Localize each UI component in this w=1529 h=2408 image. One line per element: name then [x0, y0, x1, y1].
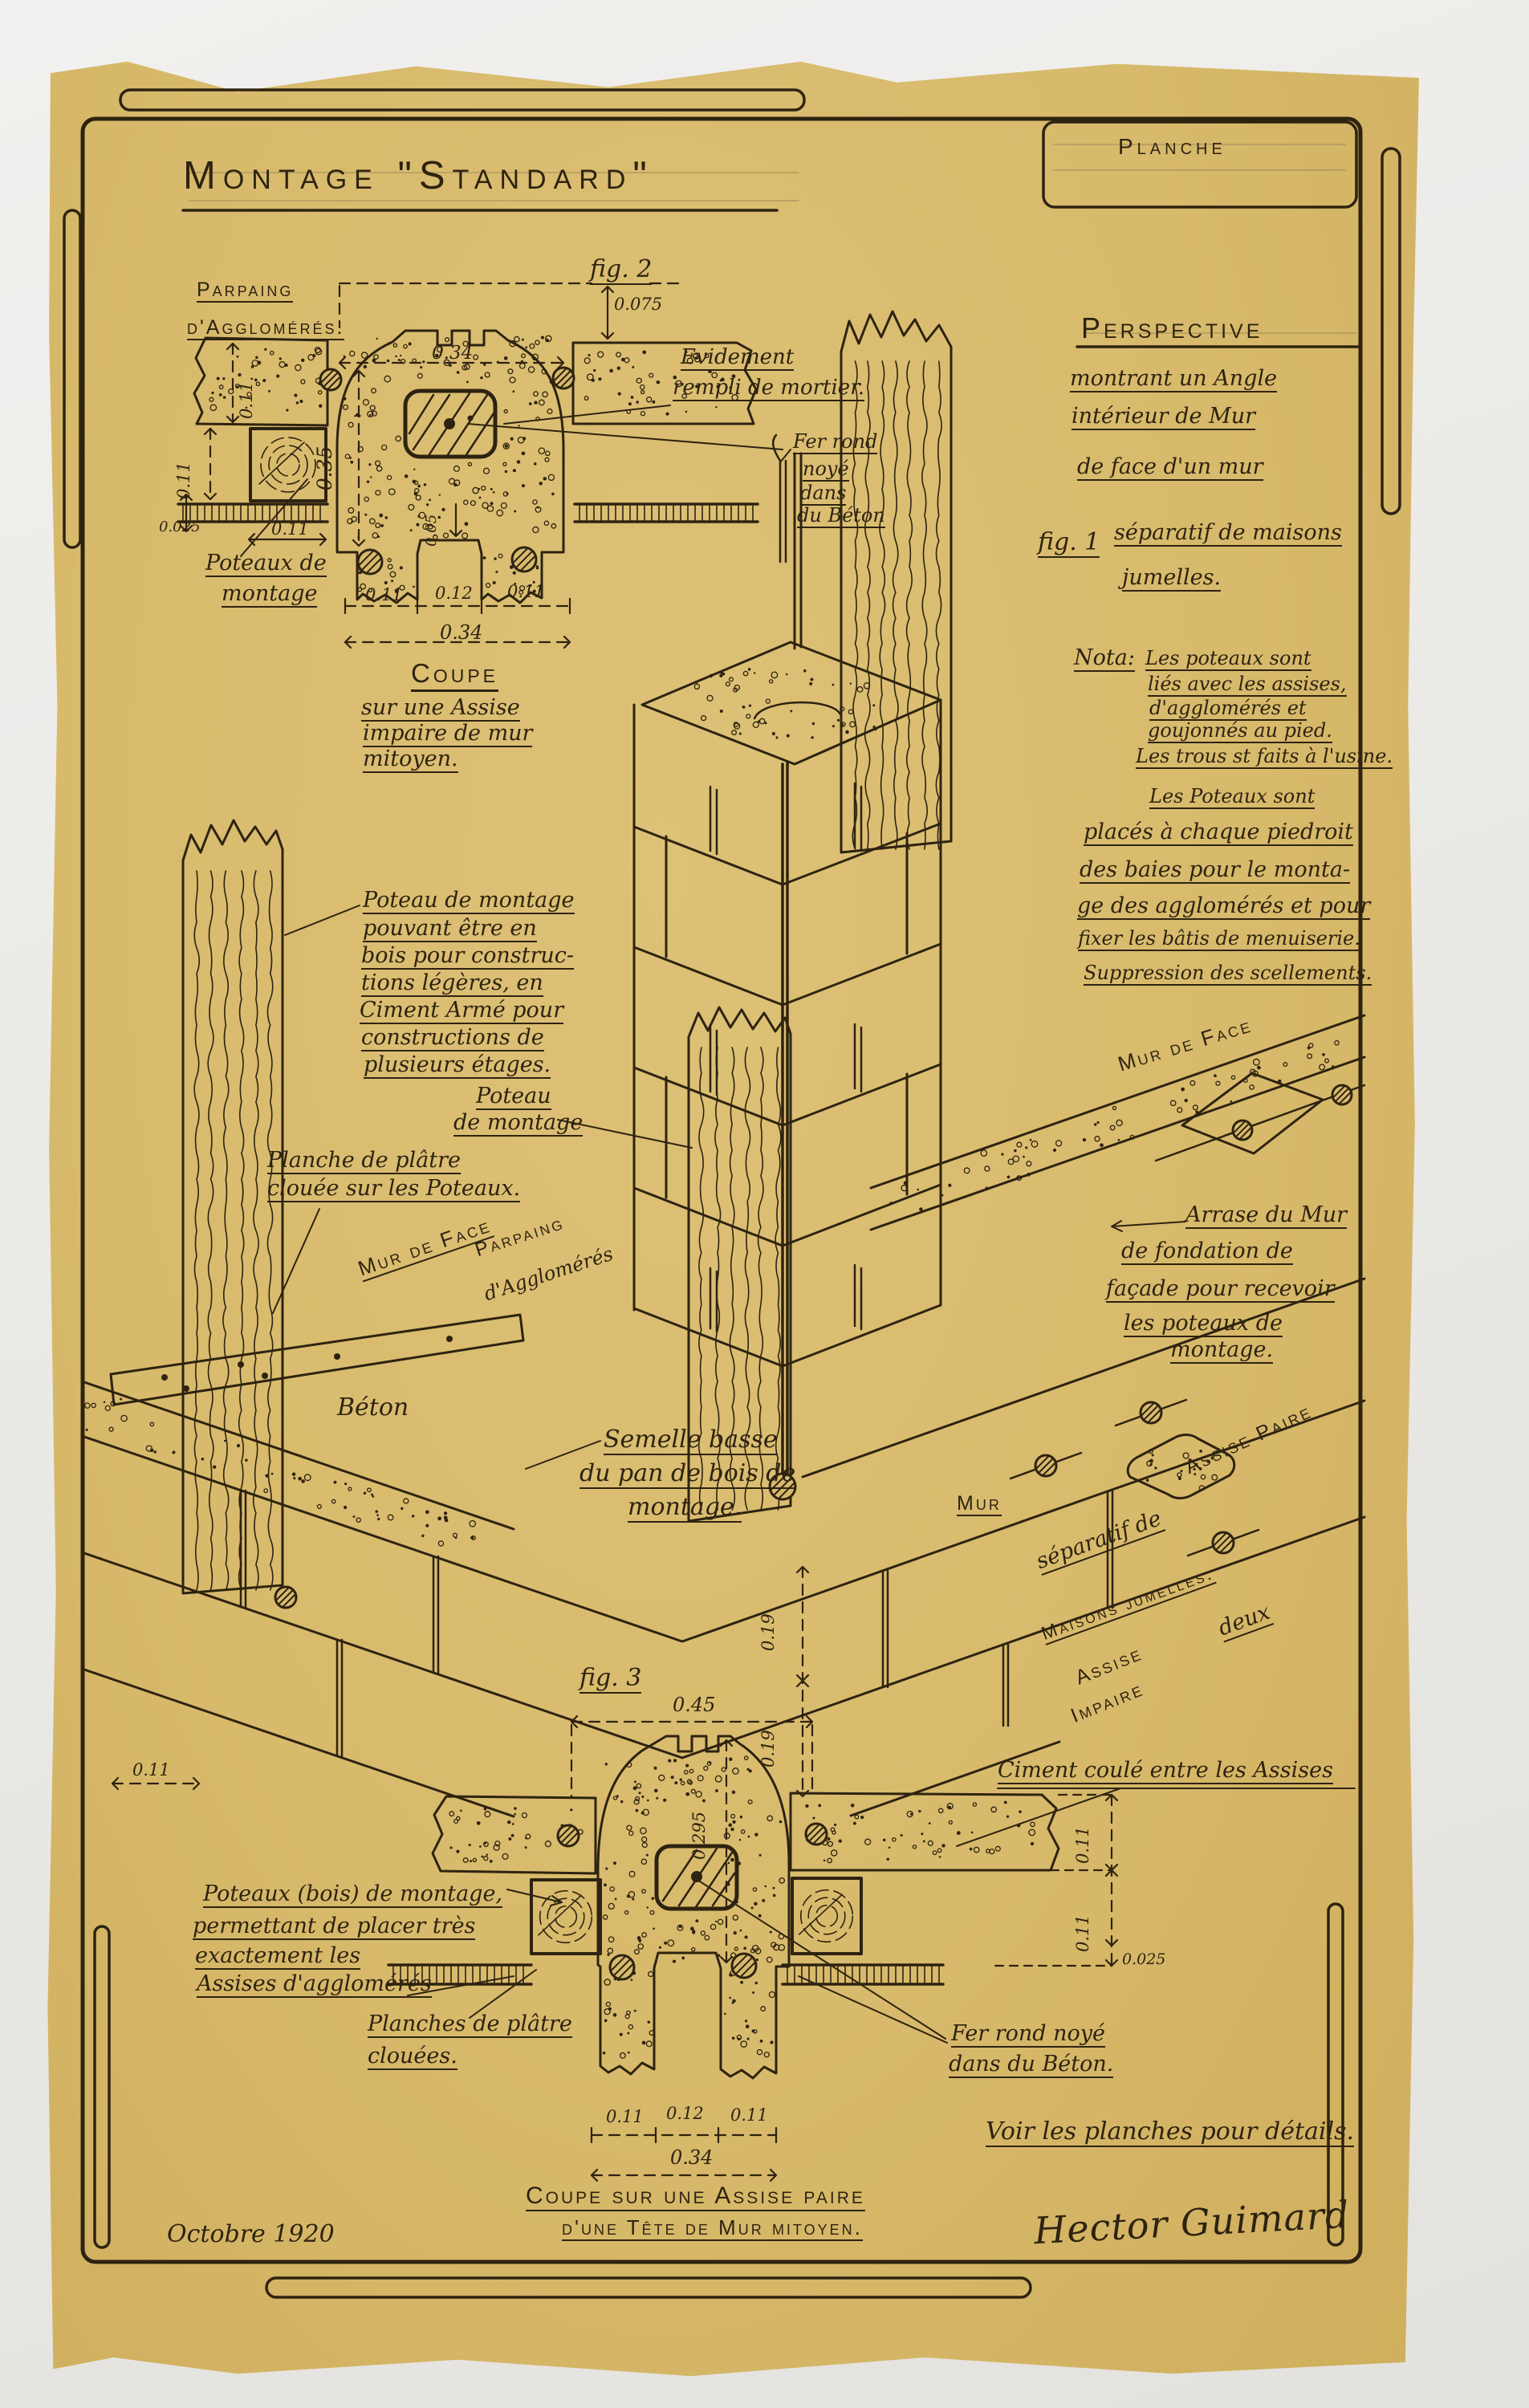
fig2-evidement-label: rempli de mortier. [673, 377, 864, 401]
nota-line: goujonnés au pied. [1148, 721, 1332, 743]
planche-platre-label: clouée sur les Poteaux. [267, 1178, 520, 1202]
nota-line: Les Poteaux sont [1149, 787, 1315, 809]
fig1-subtitle-line: jumelles. [1122, 567, 1221, 592]
poteau-note-line: tions légères, en [361, 972, 543, 997]
fig2-fer-rond-label: dans [800, 483, 846, 506]
fig2-dim-011-post: 0.11 [271, 520, 309, 538]
poteau-note-line: pouvant être en [363, 917, 537, 942]
semelle-label: Semelle basse [604, 1427, 778, 1455]
nota-line: des baies pour le monta- [1080, 859, 1350, 884]
nota-line: Les poteaux sont [1145, 649, 1311, 671]
fig3-fer-rond-label: dans du Béton. [949, 2053, 1113, 2078]
nota-label: Nota: [1074, 647, 1135, 672]
fig3-dim-0025: 0.025 [1122, 1952, 1165, 1968]
fig2-parpaing-label: d'Agglomérés. [187, 317, 344, 340]
fig2-dim-034-top: 0.34 [432, 344, 473, 363]
fig2-dim-034-bottom: 0.34 [440, 623, 482, 643]
fig3-poteaux-note: exactement les [195, 1945, 360, 1970]
fig3-caption: Coupe sur une Assise paire [526, 2183, 865, 2211]
fig3-caption: d'une Tête de Mur mitoyen. [562, 2217, 863, 2241]
scanned-drawing-page: Montage "Standard" Planche Perspective m… [0, 0, 1529, 2408]
semelle-label: du pan de bois de [579, 1461, 795, 1489]
fig3-dim-012: 0.12 [666, 2105, 704, 2122]
fig2-dim-011b: 0.11 [507, 583, 545, 600]
fig2-poteaux-label: montage [222, 583, 317, 608]
fig2-dim-0075: 0.075 [614, 295, 662, 313]
fig2-caption-line: mitoyen. [363, 748, 458, 773]
fig2-caption-title: Coupe [411, 660, 498, 692]
fig3-fer-rond-label: Fer rond noyé [951, 2023, 1105, 2048]
fig3-dim-0295: 0.295 [690, 1812, 708, 1860]
fig2-label: fig. 2 [590, 257, 652, 285]
nota-line: liés avec les assises, [1148, 674, 1347, 697]
fig1-subtitle-line: montrant un Angle [1070, 368, 1277, 393]
fig1-subtitle-line: séparatif de maisons [1114, 522, 1342, 547]
poteau-montage-label: Poteau [476, 1085, 551, 1110]
fig2-fer-rond-label: Fer rond [793, 432, 877, 454]
fig2-dim-011-left: 0.11 [238, 381, 255, 419]
fig3-dim-045: 0.45 [673, 1695, 715, 1715]
fig2-evidement-label: Evidement [681, 347, 794, 371]
nota-line: fixer les bâtis de menuiserie. [1078, 929, 1360, 951]
fig3-dim-011b: 0.11 [730, 2106, 768, 2124]
masonry-dim-011: 0.11 [132, 1761, 170, 1779]
fig2-poteaux-label: Poteaux de [205, 552, 327, 577]
fig3-label: fig. 3 [579, 1666, 641, 1694]
fig1-title: Perspective [1081, 313, 1263, 344]
arrase-line: de fondation de [1121, 1240, 1293, 1265]
fig1-subtitle-line: de face d'un mur [1077, 456, 1263, 481]
fig3-poteaux-note: Assises d'agglomérés [197, 1973, 432, 1998]
fig2-fer-rond-label: du Béton [797, 506, 885, 528]
fig3-dim-011a: 0.11 [606, 2108, 644, 2125]
fig2-dim-012: 0.12 [435, 584, 473, 602]
nota-line: Les trous st faits à l'usine. [1136, 746, 1393, 769]
fig3-dim-011r2: 0.11 [1074, 1914, 1092, 1952]
arrase-line: les poteaux de [1124, 1312, 1283, 1337]
poteau-montage-label: de montage [453, 1112, 583, 1137]
fig3-poteaux-note: permettant de placer très [193, 1915, 475, 1940]
fig1-label: fig. 1 [1038, 530, 1100, 558]
semelle-label: montage. [628, 1495, 742, 1523]
fig1-subtitle-line: intérieur de Mur [1072, 405, 1255, 430]
fig2-dim-035: 0.35 [315, 446, 335, 491]
plate-label: Planche [1118, 135, 1226, 158]
see-plates-note: Voir les planches pour détails. [986, 2119, 1354, 2147]
poteau-note-line: constructions de [361, 1027, 544, 1051]
arrase-line: Arrase du Mur [1185, 1204, 1347, 1229]
mur-separatif-label: Mur [957, 1493, 1002, 1516]
planche-platre-label: Planche de plâtre [267, 1149, 461, 1174]
fig2-dim-005: 0.05 [425, 515, 440, 547]
nota-line: d'agglomérés et [1149, 698, 1307, 721]
arrase-line: montage. [1170, 1339, 1273, 1364]
fig3-poteaux-note: Poteaux (bois) de montage, [203, 1883, 502, 1908]
fig2-dim-0025: 0.025 [159, 520, 201, 535]
fig2-dim-011-left2: 0.11 [175, 462, 193, 499]
fig3-ciment-label: Ciment coulé entre les Assises [998, 1759, 1333, 1784]
fig3-planches-label: clouées. [368, 2045, 457, 2070]
fig2-parpaing-label: Parpaing [197, 279, 293, 303]
page-title: Montage "Standard" [183, 156, 654, 197]
beton-label: Béton [337, 1395, 409, 1421]
poteau-note-line: plusieurs étages. [364, 1054, 551, 1079]
poteau-note-line: bois pour construc- [361, 945, 574, 970]
masonry-dim-019a: 0.19 [759, 1613, 777, 1651]
fig2-fer-rond-label: noyé [803, 459, 849, 482]
nota-line: Suppression des scellements. [1084, 963, 1372, 986]
poteau-note-line: Ciment Armé pour [360, 999, 563, 1024]
fig2-dim-011a: 0.11 [365, 586, 403, 604]
fig3-dim-034: 0.34 [670, 2148, 713, 2168]
arrase-line: façade pour recevoir [1106, 1278, 1335, 1303]
fig3-section [388, 1716, 1355, 2181]
date-label: Octobre 1920 [167, 2222, 335, 2247]
fig3-planches-label: Planches de plâtre [368, 2013, 572, 2038]
poteau-note-line: Poteau de montage [363, 889, 575, 914]
nota-line: placés à chaque piedroit [1084, 821, 1353, 846]
fig2-caption-line: impaire de mur [363, 722, 532, 747]
masonry-dim-019b: 0.19 [759, 1730, 777, 1767]
nota-line: ge des agglomérés et pour [1077, 895, 1370, 920]
fig3-dim-011r1: 0.11 [1074, 1826, 1092, 1864]
fig2-caption-line: sur une Assise [361, 697, 520, 722]
